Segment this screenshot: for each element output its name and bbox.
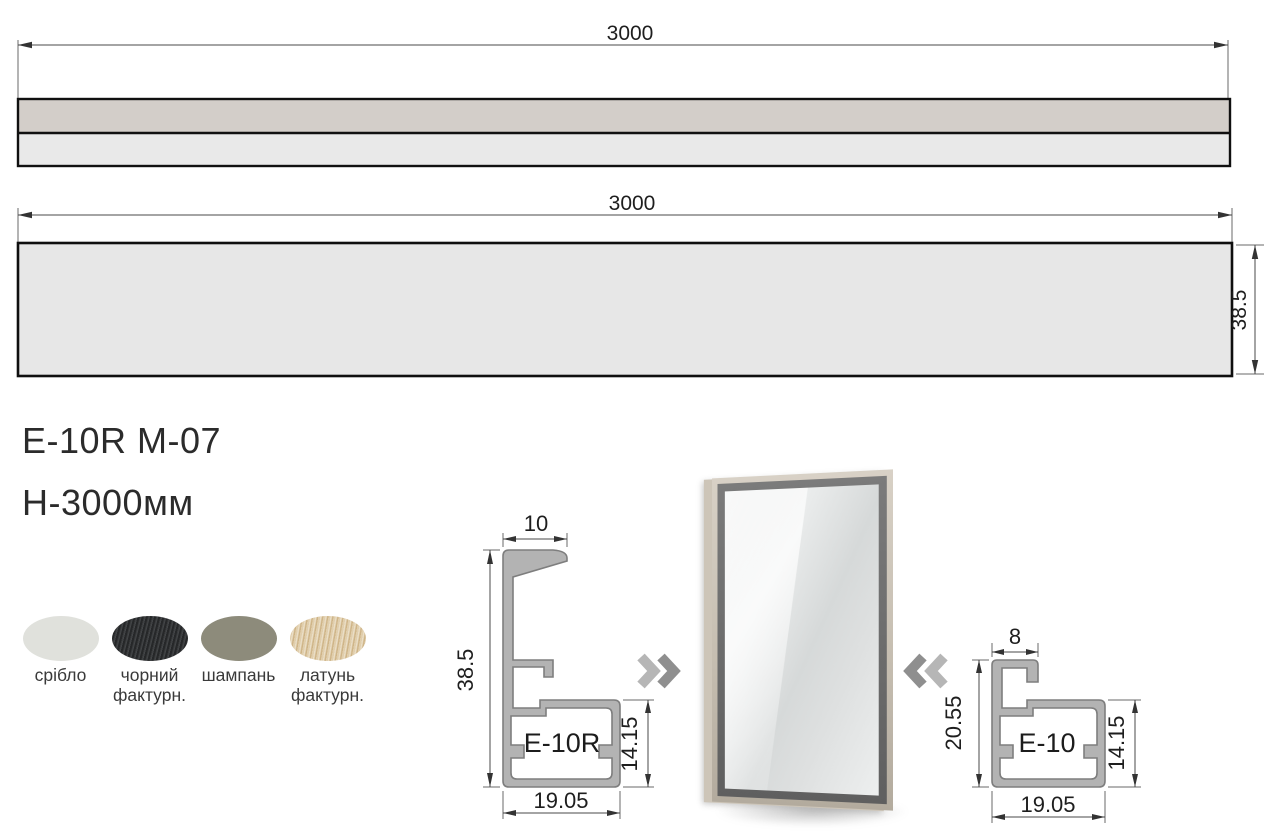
svg-text:19.05: 19.05: [1020, 792, 1075, 817]
svg-text:8: 8: [1009, 624, 1021, 649]
profile-e10r-drawing: 10 38.5 14.15 19.05 E-1: [440, 500, 664, 830]
e10-height-dimension: 20.55: [945, 660, 989, 787]
profile-e10-shape: [992, 660, 1105, 787]
brass-textured-swatch-icon[interactable]: [290, 616, 366, 661]
profile-e10r-label: E-10R: [524, 728, 601, 758]
e10-top-width-dimension: 8: [992, 624, 1038, 657]
e10r-top-width-dimension: 10: [503, 511, 567, 547]
finish-label: срібло: [15, 666, 107, 686]
bottom-bar-length-dimension: 3000: [18, 192, 1232, 242]
profile-e10-label: E-10: [1018, 728, 1075, 758]
e10r-height-dimension: 38.5: [453, 550, 500, 787]
e10r-width-dimension: 19.05: [503, 788, 620, 819]
black-textured-swatch-icon[interactable]: [112, 616, 188, 661]
finish-label: латунь фактурн.: [282, 666, 374, 705]
finish-option-champagne[interactable]: шампань: [194, 616, 283, 705]
top-bar-length-label: 3000: [607, 22, 654, 45]
bars-drawing: 3000 3000 38.5: [0, 0, 1280, 410]
product-code: E-10R M-07: [22, 420, 221, 462]
e10-box-height-dimension: 14.15: [1104, 700, 1141, 787]
bottom-bar-height-label: 38.5: [1228, 290, 1251, 331]
champagne-swatch-icon[interactable]: [201, 616, 277, 661]
product-length-spec: H-3000мм: [22, 482, 194, 524]
svg-text:14.15: 14.15: [1104, 715, 1129, 770]
profile-e10-drawing: 8 20.55 14.15 19.05 E-1: [945, 610, 1175, 835]
finish-option-silver[interactable]: срібло: [16, 616, 105, 705]
finish-label: шампань: [193, 666, 285, 686]
finish-option-brass-textured[interactable]: латунь фактурн.: [283, 616, 372, 705]
e10-width-dimension: 19.05: [992, 791, 1105, 823]
profile-bar-assembled: [18, 99, 1230, 166]
bottom-bar-length-label: 3000: [609, 192, 656, 215]
silver-swatch-icon[interactable]: [23, 616, 99, 661]
profile-bar-single: [18, 243, 1232, 376]
svg-text:19.05: 19.05: [533, 788, 588, 813]
top-bar-length-dimension: 3000: [18, 22, 1228, 98]
mirror-bezel: [718, 476, 887, 804]
bottom-bar-height-dimension: 38.5: [1228, 245, 1264, 374]
finish-options: срібло чорний фактурн. шампань латунь фа…: [16, 616, 372, 705]
svg-text:10: 10: [524, 511, 548, 536]
finish-label: чорний фактурн.: [104, 666, 196, 705]
mirror-glass: [725, 484, 879, 795]
svg-text:14.15: 14.15: [617, 716, 642, 771]
svg-text:20.55: 20.55: [945, 695, 966, 750]
e10r-box-height-dimension: 14.15: [617, 700, 654, 787]
mirror-frame: [712, 469, 893, 810]
svg-text:38.5: 38.5: [453, 649, 478, 692]
chevrons-left-icon: [898, 650, 952, 692]
catalog-sheet: 3000 3000 38.5: [0, 0, 1280, 839]
finish-option-black-textured[interactable]: чорний фактурн.: [105, 616, 194, 705]
